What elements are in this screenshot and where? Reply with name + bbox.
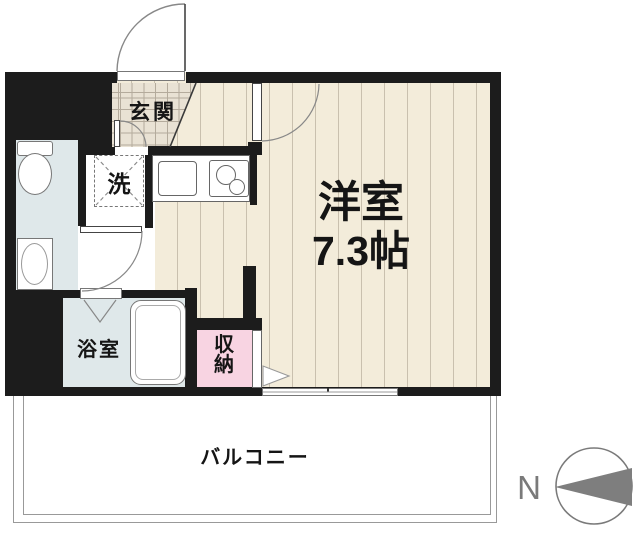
- compass-needle-icon: [555, 468, 632, 506]
- wall-segment: [186, 72, 490, 83]
- stove-burner-small: [229, 179, 245, 195]
- wall-segment: [490, 72, 501, 396]
- kitchen-sink: [158, 161, 197, 196]
- wall-segment: [148, 146, 262, 155]
- main-room-label: 洋室: [261, 178, 461, 228]
- main-room-size: 7.3帖: [261, 228, 461, 274]
- bathroom-label: 浴室: [58, 333, 140, 362]
- compass-north-label: N: [512, 469, 546, 507]
- wall-segment: [250, 153, 257, 205]
- wall-segment: [5, 387, 501, 396]
- window-center-tick: [327, 388, 329, 392]
- entrance-door-arc: [117, 4, 185, 71]
- bathtub-inner: [135, 305, 181, 380]
- entrance-threshold: [117, 71, 185, 81]
- floor-plan: 玄関 洗 浴室 収納 洋室 7.3帖 バルコニー N: [0, 0, 640, 537]
- balcony-window: [262, 388, 398, 396]
- wall-segment: [248, 142, 262, 153]
- wall-segment: [185, 288, 197, 396]
- wall-segment: [78, 140, 86, 226]
- laundry-label: 洗: [96, 165, 142, 199]
- closet-label: 収納: [212, 335, 236, 375]
- bathroom-doorway: [80, 288, 122, 299]
- room-door-leaf: [252, 83, 262, 141]
- wall-segment: [243, 266, 256, 330]
- wall-segment: [5, 72, 112, 140]
- main-room-label-block: 洋室 7.3帖: [261, 178, 461, 274]
- closet-door-panel: [252, 330, 262, 388]
- wall-segment: [7, 290, 63, 396]
- washbasin-bowl: [21, 243, 48, 285]
- toilet-door-leaf: [80, 226, 142, 233]
- entrance-label: 玄関: [112, 96, 194, 126]
- compass-circle-icon: [556, 448, 632, 524]
- toilet-bowl: [18, 153, 52, 195]
- balcony-label: バルコニー: [155, 441, 355, 470]
